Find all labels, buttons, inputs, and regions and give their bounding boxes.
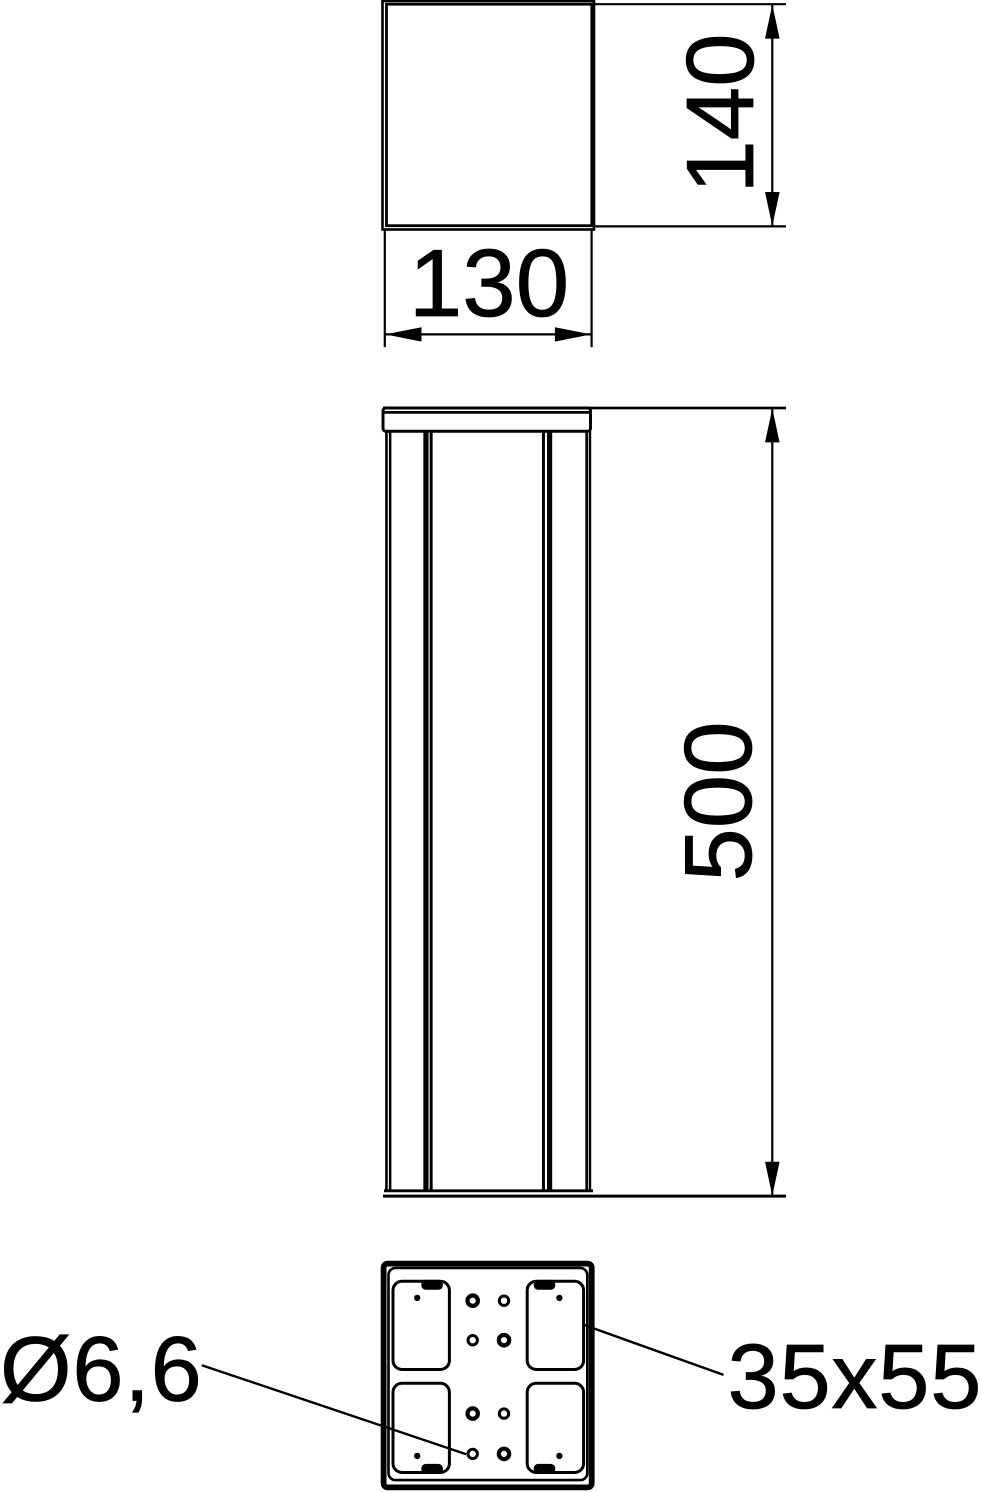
svg-text:140: 140 — [667, 33, 774, 193]
svg-text:130: 130 — [409, 230, 569, 337]
svg-text:500: 500 — [665, 721, 772, 881]
svg-text:35x55: 35x55 — [728, 1326, 981, 1428]
svg-text:Ø6,6: Ø6,6 — [0, 1318, 203, 1420]
